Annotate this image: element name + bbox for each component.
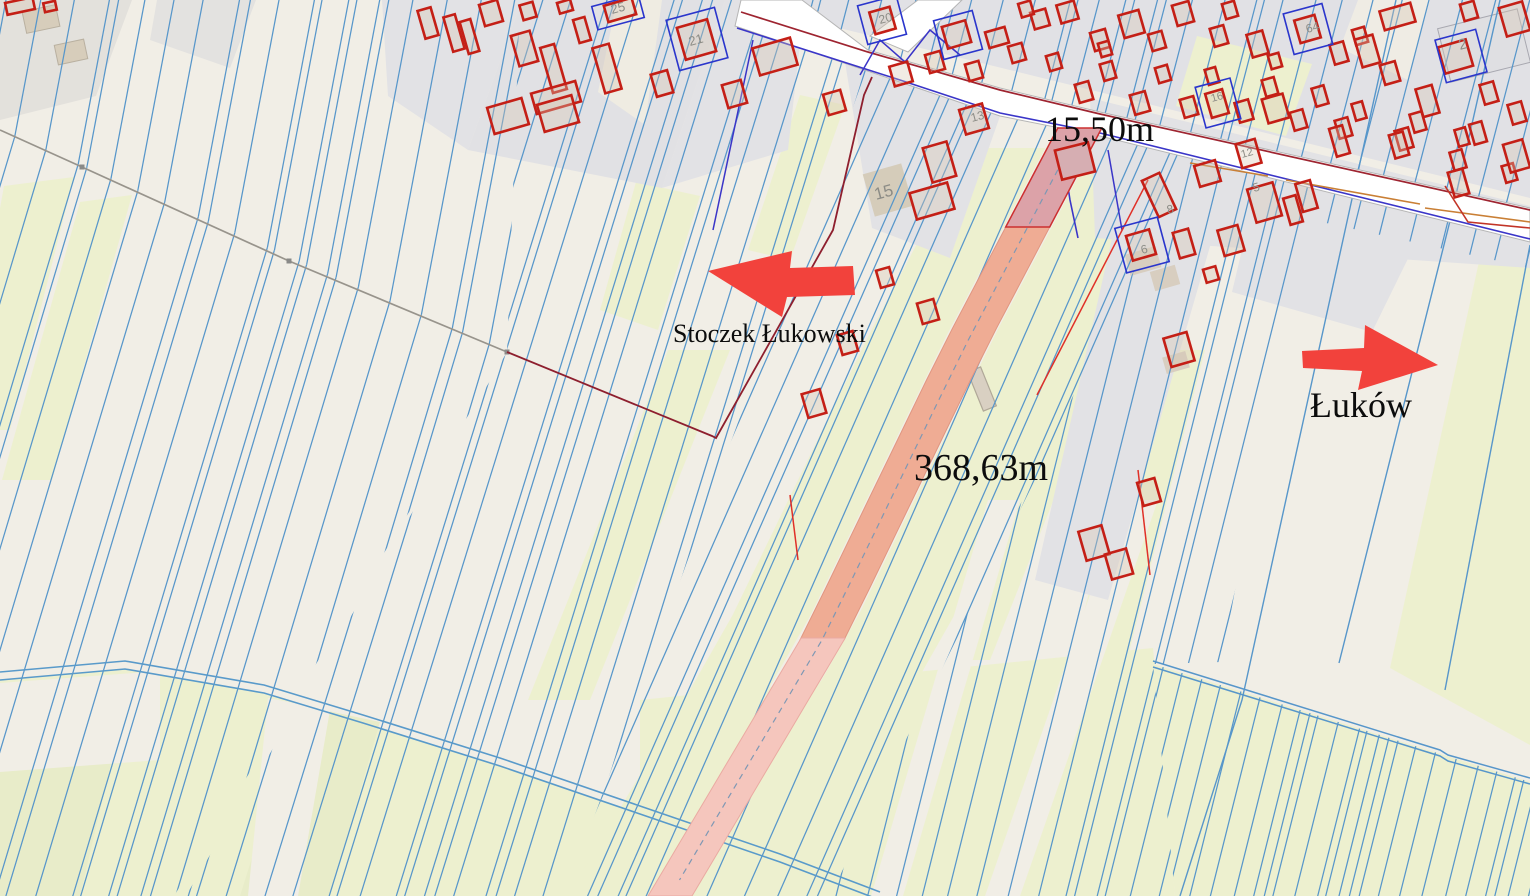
svg-text:Łuków: Łuków	[1310, 385, 1412, 425]
svg-text:368,63m: 368,63m	[914, 447, 1048, 489]
svg-text:15,50m: 15,50m	[1045, 109, 1154, 149]
svg-text:Stoczek Łukowski: Stoczek Łukowski	[673, 319, 866, 348]
